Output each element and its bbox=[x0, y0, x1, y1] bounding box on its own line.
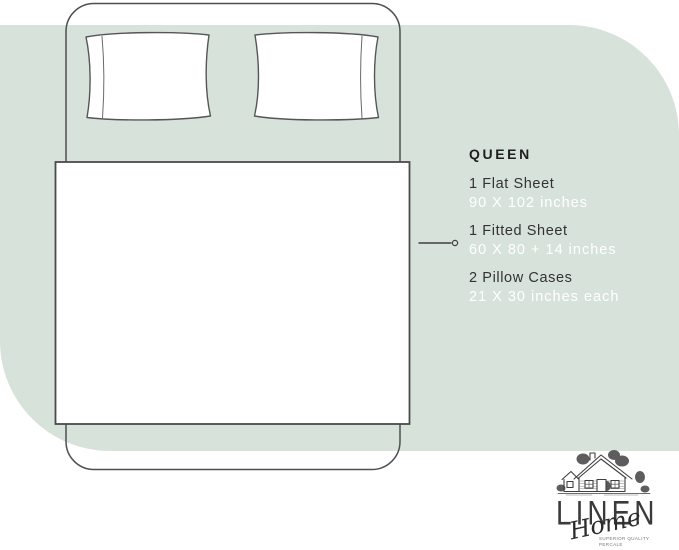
brand-tagline: SUPERIOR QUALITY PERCALE bbox=[599, 536, 649, 547]
pillow-right-icon bbox=[255, 33, 379, 120]
tagline-line-2: PERCALE bbox=[599, 542, 649, 548]
house-icon bbox=[552, 448, 656, 496]
spec-name: 1 Flat Sheet bbox=[469, 175, 669, 194]
spec-item-pillow-cases: 2 Pillow Cases 21 X 30 inches each bbox=[469, 269, 669, 307]
spec-dimensions: 60 X 80 + 14 inches bbox=[469, 241, 669, 260]
tagline-line-1: SUPERIOR QUALITY bbox=[599, 536, 649, 542]
spec-name: 2 Pillow Cases bbox=[469, 269, 669, 288]
callout-dot-icon bbox=[452, 240, 457, 245]
pillow-left-icon bbox=[86, 33, 211, 120]
spec-item-flat-sheet: 1 Flat Sheet 90 X 102 inches bbox=[469, 175, 669, 213]
spec-dimensions: 21 X 30 inches each bbox=[469, 288, 669, 307]
spec-dimensions: 90 X 102 inches bbox=[469, 194, 669, 213]
spec-item-fitted-sheet: 1 Fitted Sheet 60 X 80 + 14 inches bbox=[469, 222, 669, 260]
spec-name: 1 Fitted Sheet bbox=[469, 222, 669, 241]
size-title: QUEEN bbox=[469, 146, 669, 162]
specs-panel: QUEEN 1 Flat Sheet 90 X 102 inches 1 Fit… bbox=[469, 146, 669, 316]
brand-logo: LINEN Home SUPERIOR QUALITY PERCALE bbox=[552, 448, 656, 548]
flat-sheet-icon bbox=[56, 162, 410, 424]
infographic-canvas: QUEEN 1 Flat Sheet 90 X 102 inches 1 Fit… bbox=[0, 0, 679, 550]
